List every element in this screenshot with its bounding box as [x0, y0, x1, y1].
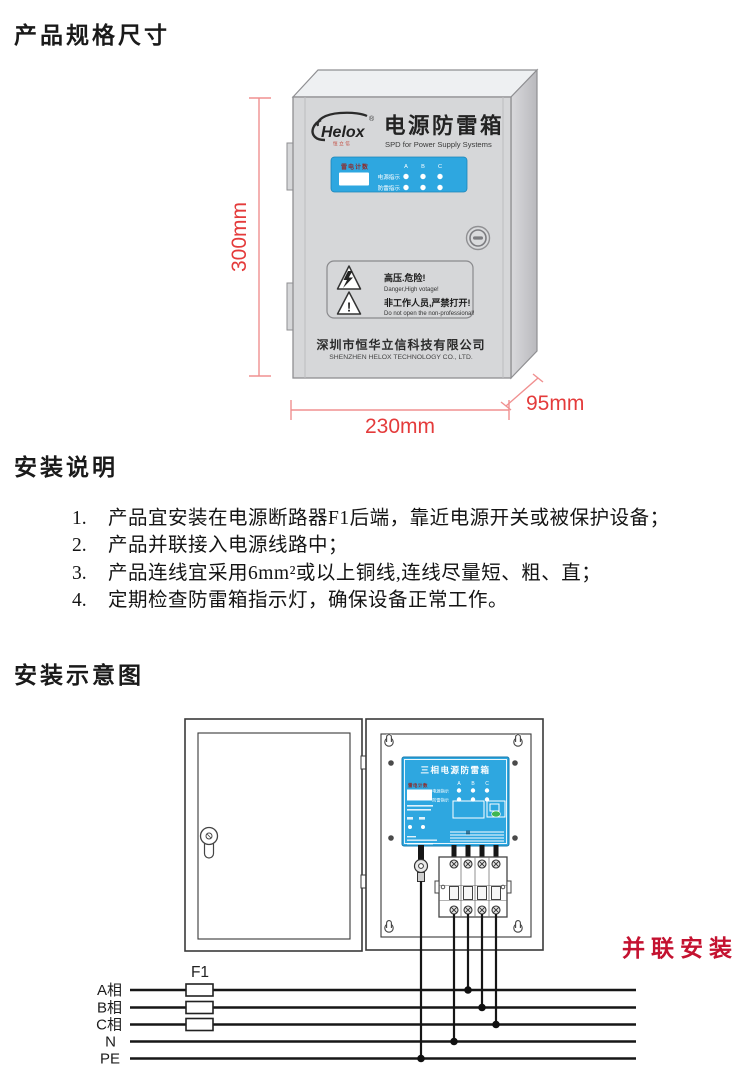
dim-depth-label: 95mm [526, 392, 584, 415]
module-phase-c: C [485, 781, 489, 787]
brand-sub-cn: 恒立信 [333, 140, 351, 147]
bus-label-n: N [105, 1034, 116, 1051]
company-name-cn: 深圳市恒华立信科技有限公司 [316, 337, 485, 352]
cabinet-lock-icon [467, 227, 490, 250]
warning-en2: Do not open the non-professional! [384, 311, 475, 317]
company-name-en: SHENZHEN HELOX TECHNOLOGY CO., LTD. [329, 354, 473, 361]
bus-label-c: C相 [96, 1017, 122, 1034]
install-note: 2. 产品并联接入电源线路中； [72, 532, 732, 559]
module-counter-window [407, 790, 432, 801]
warning-en1: Danger,High votage! [384, 287, 439, 293]
parallel-install-label: 并联安装 [622, 935, 738, 961]
indicator-panel: 雷电计数 A B C 电源指示 防雷指示 [331, 157, 467, 192]
module-counter-label: 雷电计数 [408, 782, 428, 789]
installation-diagram: 三相电源防雷箱 雷电计数 A B C 电源指示 防雷指示 [55, 705, 750, 1084]
warning-cn2: 非工作人员,严禁打开! [384, 297, 471, 308]
note-text: 产品连线宜采用6mm²或以上铜线,连线尽量短、粗、直； [108, 560, 601, 587]
registered-mark-icon: ® [369, 115, 375, 123]
module-title: 三相电源防雷箱 [420, 765, 490, 775]
install-notes-list: 1. 产品宜安装在电源断路器F1后端，靠近电源开关或被保护设备； 2. 产品并联… [72, 505, 732, 615]
install-note: 1. 产品宜安装在电源断路器F1后端，靠近电源开关或被保护设备； [72, 505, 732, 532]
phase-b-label: B [421, 164, 425, 170]
bus-label-b: B相 [97, 1000, 122, 1017]
module-surge-label: 防雷指示 [432, 797, 449, 804]
f1-label: F1 [191, 964, 209, 981]
note-number: 2. [72, 532, 108, 559]
spec-section-title: 产品规格尺寸 [14, 16, 170, 50]
bus-label-pe: PE [100, 1051, 120, 1068]
diagram-section-title: 安装示意图 [14, 656, 144, 690]
install-note: 4. 定期检查防雷箱指示灯，确保设备正常工作。 [72, 587, 732, 614]
lightning-counter-window [339, 173, 369, 186]
power-indicator-label: 电源指示 [378, 173, 401, 181]
note-number: 4. [72, 587, 108, 614]
product-dimension-drawing: Helox ® 恒立信 电源防雷箱 SPD for Power Supply S… [215, 60, 595, 440]
note-text: 定期检查防雷箱指示灯，确保设备正常工作。 [108, 587, 508, 614]
svg-text:!: ! [347, 300, 351, 315]
box-top-face [293, 70, 537, 97]
breaker-block [435, 857, 511, 917]
install-note: 3. 产品连线宜采用6mm²或以上铜线,连线尽量短、粗、直； [72, 560, 732, 587]
module-test-button [492, 811, 501, 817]
product-spec-page: 产品规格尺寸 Helox ® 恒立信 电源防雷箱 SPD for [0, 0, 750, 1084]
product-name-en: SPD for Power Supply Systems [385, 140, 492, 149]
surge-indicator-label: 防雷指示 [378, 184, 401, 192]
enclosure-door-open [185, 719, 367, 951]
bus-labels: A相 B相 C相 N PE [96, 982, 122, 1068]
breaker-f1-symbols [186, 984, 213, 1031]
dim-height-label: 300mm [228, 202, 251, 272]
product-name: 电源防雷箱 [384, 113, 504, 138]
counter-label: 雷电计数 [341, 163, 369, 171]
phase-c-label: C [438, 164, 442, 170]
spd-module: 三相电源防雷箱 雷电计数 A B C 电源指示 防雷指示 [402, 757, 509, 846]
install-section-title: 安装说明 [14, 448, 118, 482]
note-text: 产品并联接入电源线路中； [108, 532, 348, 559]
warning-cn1: 高压.危险! [384, 272, 426, 283]
brand-name: Helox [321, 124, 366, 141]
box-side-face [511, 70, 537, 378]
module-power-label: 电源指示 [432, 788, 449, 795]
note-text: 产品宜安装在电源断路器F1后端，靠近电源开关或被保护设备； [108, 505, 670, 532]
note-number: 1. [72, 505, 108, 532]
dim-width-label: 230mm [365, 415, 435, 438]
note-number: 3. [72, 560, 108, 587]
phase-a-label: A [404, 164, 408, 170]
bus-label-a: A相 [97, 982, 122, 999]
